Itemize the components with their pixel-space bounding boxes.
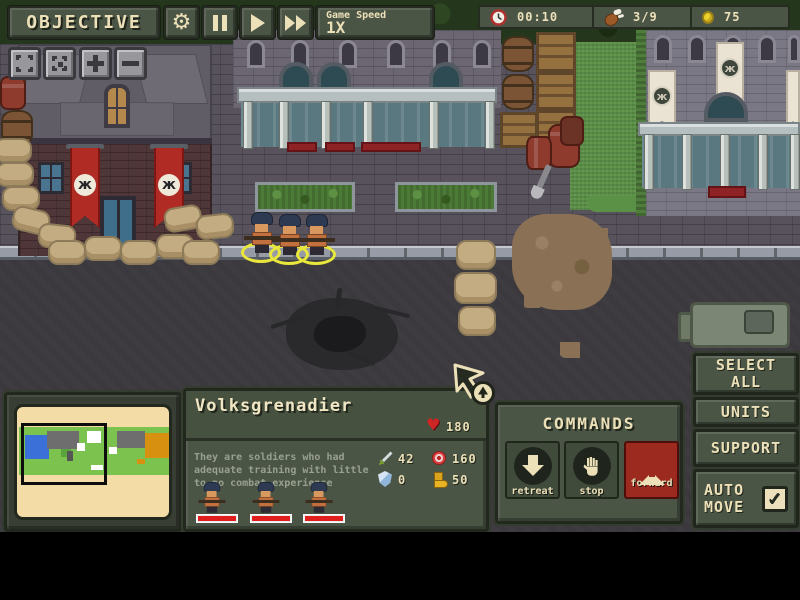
coin-icon [702,11,714,24]
red-barrel [0,76,26,110]
timer-value: 00:10 [517,10,558,24]
expand-icon [16,55,33,72]
select-all-button[interactable]: SELECT ALL [693,353,799,395]
dirt-patch [512,214,612,310]
column [485,101,495,149]
unit-cost: 50 [452,473,468,487]
commands-title: COMMANDS [498,414,680,433]
sandbag [84,236,122,261]
minimap-panel[interactable] [4,392,182,532]
arched-window [387,40,405,68]
column [429,101,439,149]
coins-value: 75 [724,10,740,24]
unit-attack: 42 [398,452,414,466]
health-bar [250,514,292,523]
letterbox-bar [0,532,800,600]
timer-display: 00:10 [480,7,592,27]
rations-display: 3/9 [592,7,690,27]
sandbag [182,240,220,265]
cream-banner [786,70,800,128]
column [682,134,692,190]
column [758,134,768,190]
unit-card[interactable] [250,486,294,526]
unit-card[interactable] [196,486,240,526]
unit-card[interactable] [303,486,347,526]
center-view-button[interactable] [43,47,76,80]
play-icon [251,14,265,32]
red-carpet [325,142,355,152]
wooden-barrel [502,74,534,110]
checkmark-icon: ✓ [767,491,784,508]
retreat-arrow-icon [522,455,544,476]
sword-icon [378,451,393,471]
cream-banner: ж [648,70,676,128]
game-screen: ж ж ж [0,0,800,600]
sandbag [120,240,158,265]
red-carpet [708,186,746,198]
forward-button[interactable]: forward [624,441,679,499]
units-button[interactable]: UNITS [693,397,799,427]
select-all-label: SELECT ALL [701,357,791,391]
pause-icon [213,15,227,31]
wooden-barrel [502,36,534,72]
game-speed-panel: Game Speed 1X [316,6,434,39]
sandbag [0,138,32,163]
faction-emblem-icon: ж [720,58,740,78]
minimap[interactable] [14,404,172,520]
column [720,134,730,190]
retreat-label: retreat [507,486,558,497]
arched-window [473,40,491,68]
zoom-out-icon [122,61,139,66]
auto-move-button[interactable]: AUTO MOVE ✓ [693,469,799,528]
window [38,162,64,194]
arched-window [788,35,800,63]
faction-emblem-icon: ж [74,174,96,196]
game-speed-value: 1X [326,21,345,35]
sandbag [0,162,34,187]
unit-armor: 0 [398,473,406,487]
sandbag [456,240,496,270]
unit-header: Volksgrenadier ♥ 180 [186,391,486,441]
fullscreen-button[interactable] [8,47,41,80]
soldier-unit[interactable] [301,214,335,266]
red-banner: ж [70,148,100,228]
commands-panel: COMMANDS retreat stop forward [495,402,683,524]
support-label: SUPPORT [711,440,781,457]
shrink-icon [52,56,67,71]
minimap-block [109,447,117,454]
shield-icon [378,471,392,487]
crater [286,298,398,370]
sandbag [458,306,496,336]
target-icon [432,451,446,465]
auto-move-checkbox[interactable]: ✓ [762,486,788,512]
health-bar [303,514,345,523]
colonnade-beam [638,122,800,136]
supply-truck [678,296,796,354]
fuel-barrel [560,116,584,146]
column [644,134,654,190]
retreat-button[interactable]: retreat [505,441,560,499]
support-button[interactable]: SUPPORT [693,429,799,467]
heart-icon: ♥ [426,417,440,433]
settings-button[interactable]: ⚙ [164,6,199,39]
sandbag [454,272,497,304]
clock-icon [490,9,507,26]
arched-window [758,35,776,63]
arched-window [688,35,706,63]
objective-button[interactable]: OBJECTIVE [8,6,160,39]
unit-name: Volksgrenadier [195,396,352,416]
red-carpet [287,142,317,152]
arched-window [654,35,672,63]
health-bar [196,514,238,523]
red-carpet [361,142,421,152]
hedge-planter [395,182,497,212]
stop-label: stop [566,486,617,497]
zoom-in-icon [87,55,104,72]
unit-range: 160 [452,452,477,466]
wooden-crate [536,32,576,72]
units-label: UNITS [721,404,771,421]
hedge-planter [255,182,355,212]
fast-forward-button[interactable] [278,6,313,39]
battlefield-map: ж ж ж [0,0,800,532]
game-cursor-icon [450,360,496,406]
drumstick-icon [602,7,625,27]
coins-display: 75 [690,7,788,27]
unit-hp: 180 [446,420,471,434]
arched-window [247,40,265,68]
fast-forward-icon [285,15,307,31]
forward-arrow-icon [638,457,666,472]
zoom-in-button[interactable] [79,47,112,80]
rations-value: 3/9 [633,10,658,24]
gear-icon: ⚙ [172,12,192,34]
sandbag [48,240,86,265]
minimap-viewport[interactable] [21,423,107,485]
faction-emblem-icon: ж [158,174,180,196]
resource-bar: 00:10 3/9 75 [478,5,790,29]
grass-patch [588,196,642,212]
column [790,134,800,190]
minimap-block [145,433,169,458]
play-button[interactable] [240,6,275,39]
wooden-crate [536,72,576,110]
stop-hand-icon [580,454,604,478]
minimap-block [137,459,145,464]
minimap-block [117,431,145,448]
stop-button[interactable]: stop [564,441,619,499]
unit-info-panel: Volksgrenadier ♥ 180 They are soldiers w… [183,388,489,532]
pause-button[interactable] [202,6,237,39]
auto-move-label: AUTO MOVE [704,482,762,516]
faction-emblem-icon: ж [652,86,672,106]
right-building: ж ж [636,30,800,246]
dormer-window [104,84,130,128]
sandbag [195,212,235,241]
zoom-out-button[interactable] [114,47,147,80]
column [243,101,253,149]
